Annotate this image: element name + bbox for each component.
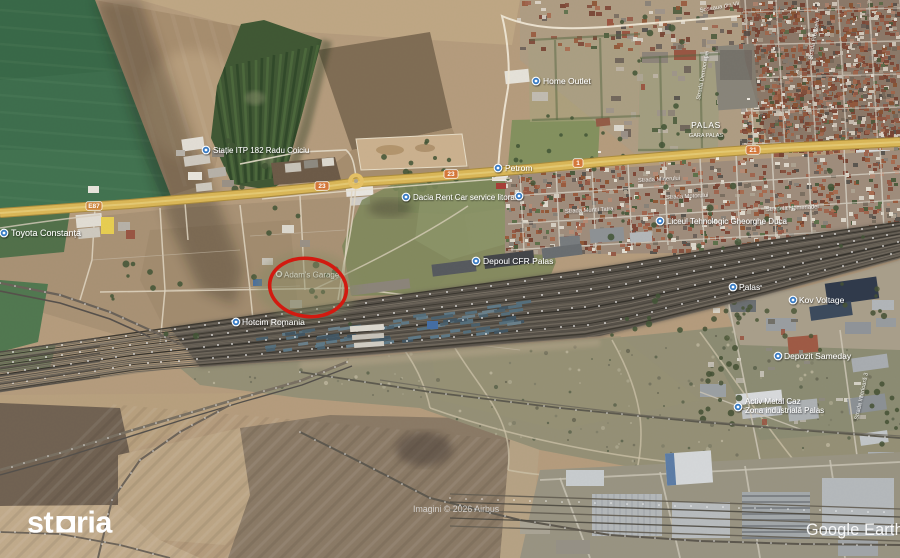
svg-text:Depozit Sameday: Depozit Sameday bbox=[784, 351, 852, 361]
svg-text:Imagini © 2026 Airbus: Imagini © 2026 Airbus bbox=[413, 504, 500, 514]
svg-text:Petrom: Petrom bbox=[505, 163, 532, 173]
svg-text:Zona industrială Palas: Zona industrială Palas bbox=[745, 406, 824, 415]
svg-text:Palas: Palas bbox=[739, 282, 760, 292]
svg-text:PALAS: PALAS bbox=[691, 120, 721, 130]
svg-text:Dacia Rent Car service litoral: Dacia Rent Car service litoral bbox=[413, 193, 517, 202]
svg-text:Stație ITP 182 Radu Coiciu: Stație ITP 182 Radu Coiciu bbox=[213, 146, 309, 155]
svg-text:Liceul Tehnologic Gheorghe Duc: Liceul Tehnologic Gheorghe Duca bbox=[667, 217, 787, 226]
svg-text:Google Earth: Google Earth bbox=[806, 521, 900, 539]
svg-text:Depoul CFR Palas: Depoul CFR Palas bbox=[483, 256, 553, 266]
svg-text:Home Outlet: Home Outlet bbox=[543, 76, 591, 86]
svg-text:Kov Voltage: Kov Voltage bbox=[799, 295, 845, 305]
svg-text:st: st bbox=[27, 506, 53, 540]
svg-text:GARA PALAS: GARA PALAS bbox=[689, 133, 723, 139]
svg-text:Toyota Constanța: Toyota Constanța bbox=[11, 228, 81, 238]
svg-text:Activ Metal Caz: Activ Metal Caz bbox=[745, 397, 801, 406]
svg-text:ria: ria bbox=[76, 506, 113, 540]
